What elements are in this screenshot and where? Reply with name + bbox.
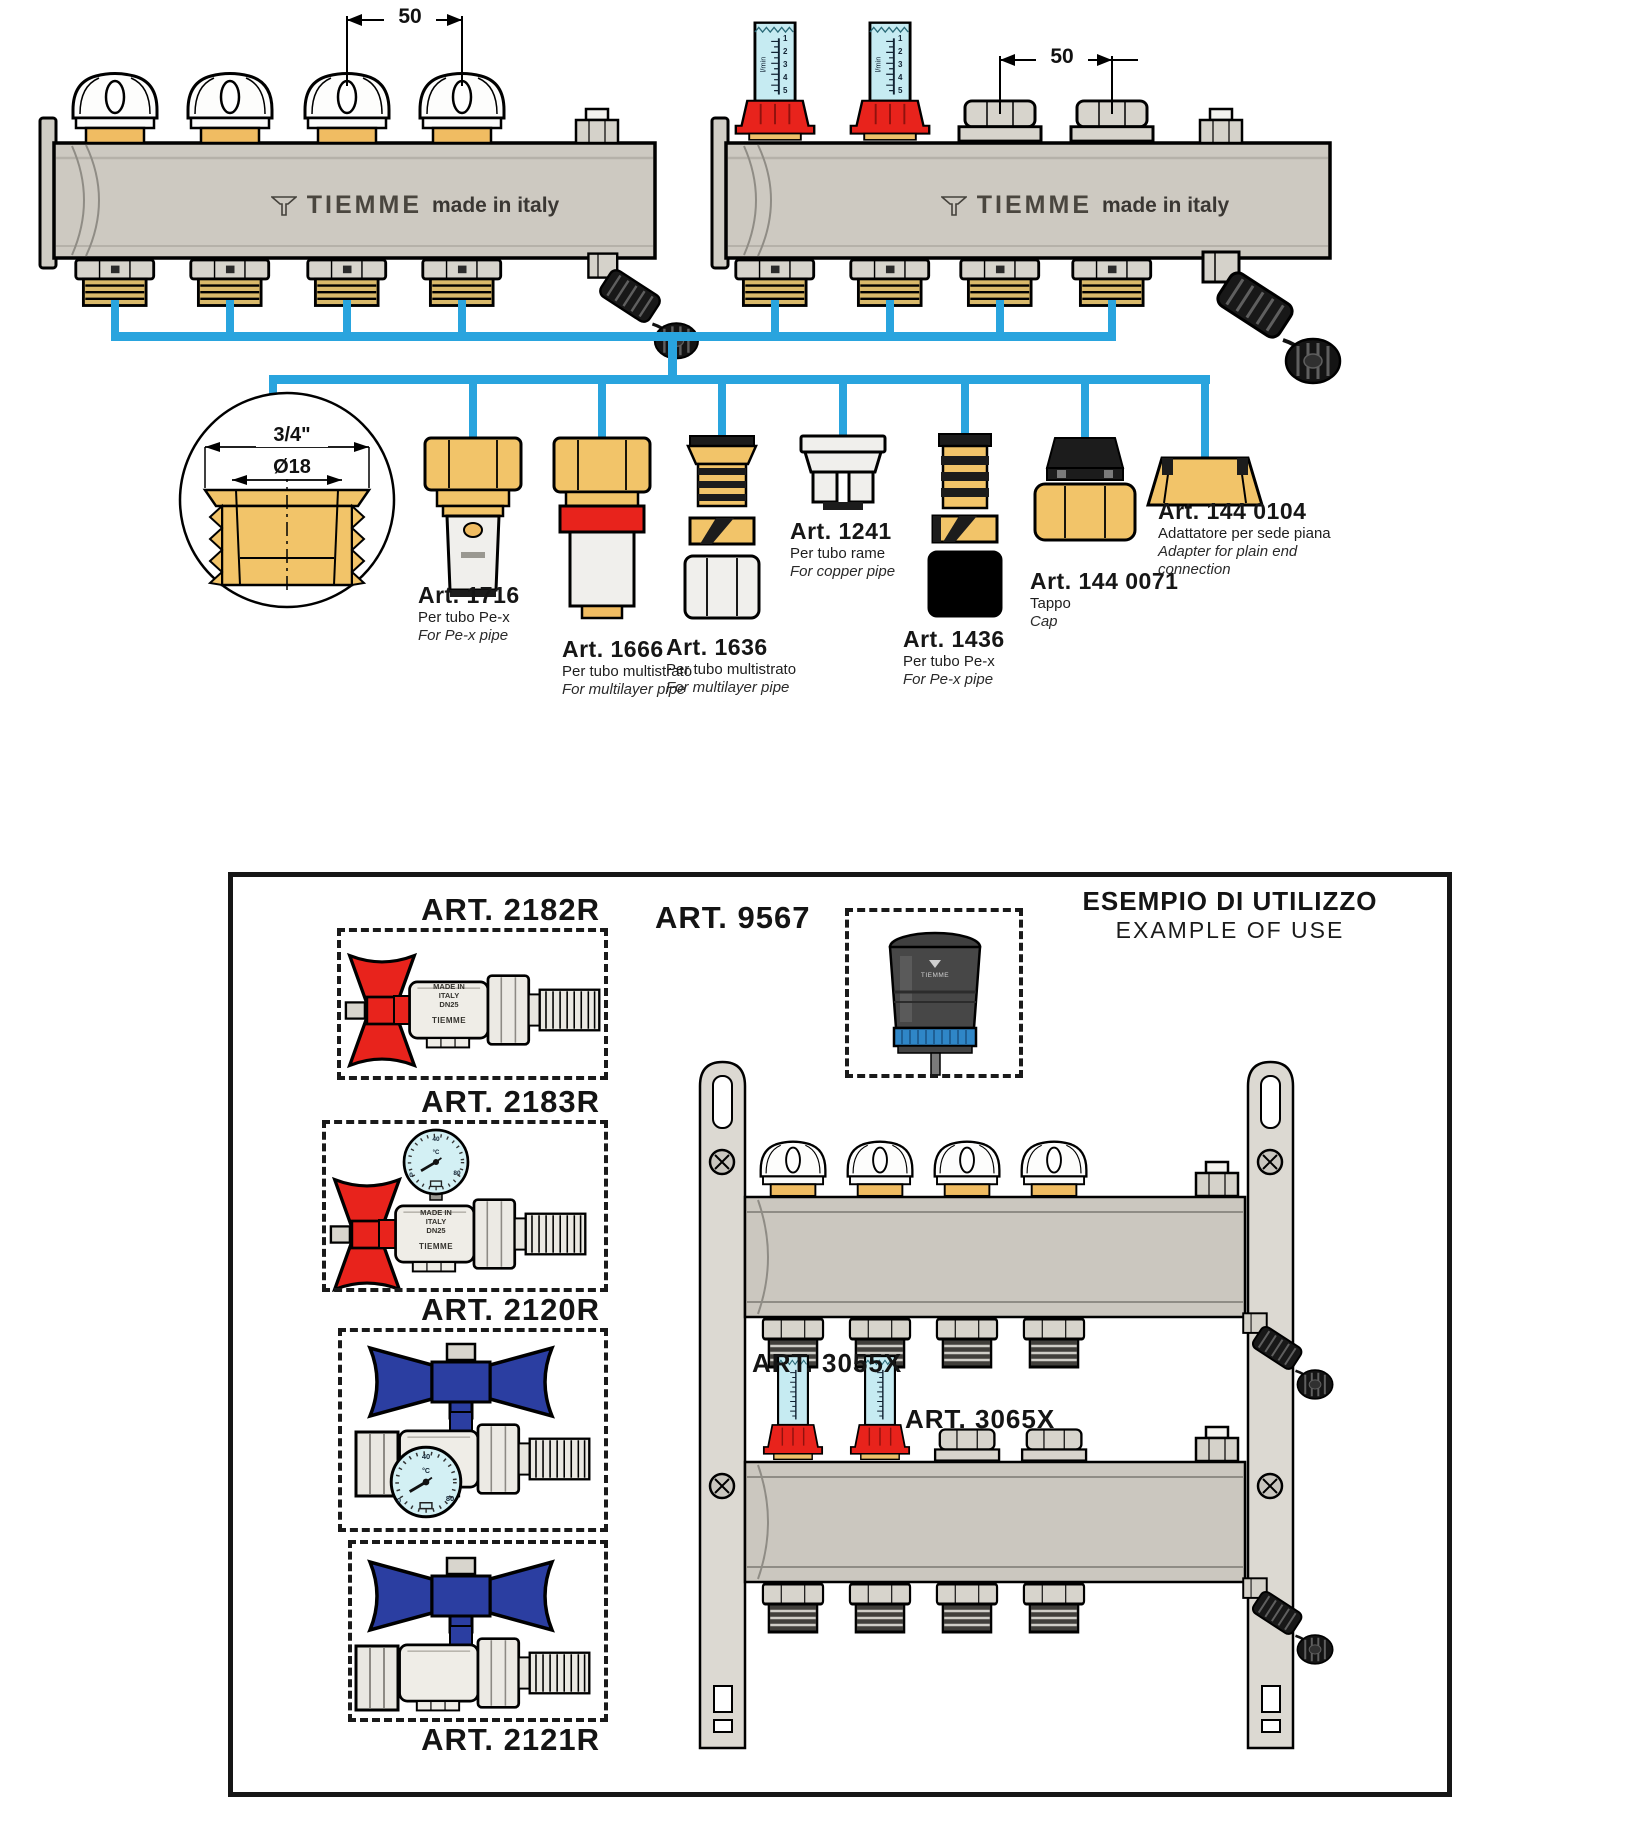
label-art-2183r: ART. 2183R: [322, 1084, 600, 1120]
label-art-2121r: ART. 2121R: [348, 1722, 600, 1758]
detail-outer-dim: 3/4": [256, 424, 328, 447]
brand-origin: made in italy: [1102, 194, 1229, 218]
dimension-label-right: 50: [1036, 45, 1088, 69]
brand-text-left: TIEMME made in italy: [265, 191, 565, 220]
flowmeter-tick: 1: [898, 34, 910, 43]
marking-line: MADE IN: [398, 1208, 474, 1217]
flowmeter-tick: 2: [898, 47, 910, 56]
label-art-3065x: ART. 3065X: [905, 1404, 1075, 1435]
caption-english: Adapter for plain end connection: [1158, 543, 1336, 579]
marking-line: MADE IN: [412, 982, 486, 991]
tiemme-logo-icon: [271, 196, 297, 216]
caption-art-1440104: Art. 144 0104 Adattatore per sede piana …: [1158, 498, 1336, 579]
article-number: Art. 1716: [418, 582, 578, 609]
marking-brand: TIEMME: [412, 1016, 486, 1025]
dimension-label-left: 50: [384, 5, 436, 29]
drain-valve: [588, 254, 698, 359]
marking-line: DN25: [412, 1000, 486, 1009]
label-art-2120r: ART. 2120R: [338, 1292, 600, 1328]
caption-english: For Pe-x pipe: [418, 627, 578, 645]
flowmeter-tick: 5: [783, 86, 795, 95]
caption-art-1636: Art. 1636 Per tubo multistrato For multi…: [666, 634, 841, 697]
article-number: Art. 1241: [790, 518, 950, 545]
caption-english: Cap: [1030, 613, 1200, 631]
label-art-9567: ART. 9567: [655, 900, 840, 936]
caption-art-1436: Art. 1436 Per tubo Pe-x For Pe-x pipe: [903, 626, 1063, 689]
air-vent: [1200, 109, 1242, 143]
dial-number-top: 40: [428, 1136, 444, 1143]
marking-brand: TIEMME: [398, 1242, 474, 1251]
example-title: ESEMPIO DI UTILIZZO EXAMPLE OF USE: [1060, 886, 1400, 944]
flowmeter-unit: l/min: [874, 43, 883, 87]
caption-italian: Adattatore per sede piana: [1158, 525, 1336, 543]
dashed-box-art-2121r: [348, 1540, 608, 1722]
brand-name: TIEMME: [977, 191, 1092, 220]
article-number: Art. 144 0104: [1158, 498, 1336, 525]
flowmeter-tick: 4: [783, 73, 795, 82]
label-art-3055x: ART. 3055X: [752, 1348, 922, 1379]
example-title-english: EXAMPLE OF USE: [1060, 917, 1400, 944]
valve-marking-2183r: MADE IN ITALY DN25 TIEMME: [398, 1208, 474, 1251]
caption-english: For Pe-x pipe: [903, 671, 1063, 689]
thermostatic-cap: [73, 74, 157, 144]
caption-english: For copper pipe: [790, 563, 950, 581]
dial-unit: °C: [429, 1150, 443, 1156]
caption-italian: Per tubo Pe-x: [418, 609, 578, 627]
tiemme-logo-icon: [941, 196, 967, 216]
dial-number-low-left: 0: [406, 1172, 416, 1179]
example-title-italian: ESEMPIO DI UTILIZZO: [1060, 886, 1400, 917]
flowmeter-unit: l/min: [759, 43, 768, 87]
detail-inner-dim: Ø18: [258, 456, 326, 479]
dashed-box-art-9567: [845, 908, 1023, 1078]
flowmeter-tick: 3: [783, 60, 795, 69]
brand-origin: made in italy: [432, 194, 559, 218]
dial-number-low-left: 0: [394, 1496, 404, 1505]
dial-number-low-right: 80: [450, 1170, 464, 1177]
fitting-art-1636: [685, 436, 759, 618]
catalog-page: 50 50 TIEMME made in italy TIEMME made i…: [0, 0, 1638, 1836]
marking-line: ITALY: [398, 1217, 474, 1226]
caption-art-1716: Art. 1716 Per tubo Pe-x For Pe-x pipe: [418, 582, 578, 645]
dashed-box-art-2183r: [322, 1120, 608, 1292]
fitting-art-1716: [425, 438, 521, 597]
article-number: Art. 1636: [666, 634, 841, 661]
flowmeter-tick: 5: [898, 86, 910, 95]
fitting-art-1440071: [1035, 438, 1135, 540]
flowmeter-tick: 2: [783, 47, 795, 56]
caption-italian: Per tubo Pe-x: [903, 653, 1063, 671]
caption-art-1241: Art. 1241 Per tubo rame For copper pipe: [790, 518, 950, 581]
valve-marking-2182r: MADE IN ITALY DN25 TIEMME: [412, 982, 486, 1025]
caption-italian: Tappo: [1030, 595, 1200, 613]
flowmeter-tick: 3: [898, 60, 910, 69]
dial-number-low-right: 80: [442, 1494, 458, 1503]
dial-number-top: 40: [417, 1452, 435, 1461]
manifold-outlet: [76, 260, 154, 306]
actuator-brand: TIEMME: [905, 972, 965, 979]
caption-italian: Per tubo multistrato: [666, 661, 841, 679]
marking-line: ITALY: [412, 991, 486, 1000]
air-vent: [576, 109, 618, 143]
dashed-box-art-2120r: [338, 1328, 608, 1532]
caption-italian: Per tubo rame: [790, 545, 950, 563]
flowmeter-tick: 1: [783, 34, 795, 43]
marking-line: DN25: [398, 1226, 474, 1235]
drain-valve: [1203, 252, 1340, 383]
flow-meter: [736, 23, 814, 140]
brand-name: TIEMME: [307, 191, 422, 220]
brand-text-right: TIEMME made in italy: [935, 191, 1235, 220]
flowmeter-tick: 4: [898, 73, 910, 82]
fitting-art-1241: [801, 436, 885, 510]
label-art-2182r: ART. 2182R: [338, 892, 600, 928]
caption-english: For multilayer pipe: [666, 679, 841, 697]
dial-unit: °C: [418, 1468, 434, 1475]
